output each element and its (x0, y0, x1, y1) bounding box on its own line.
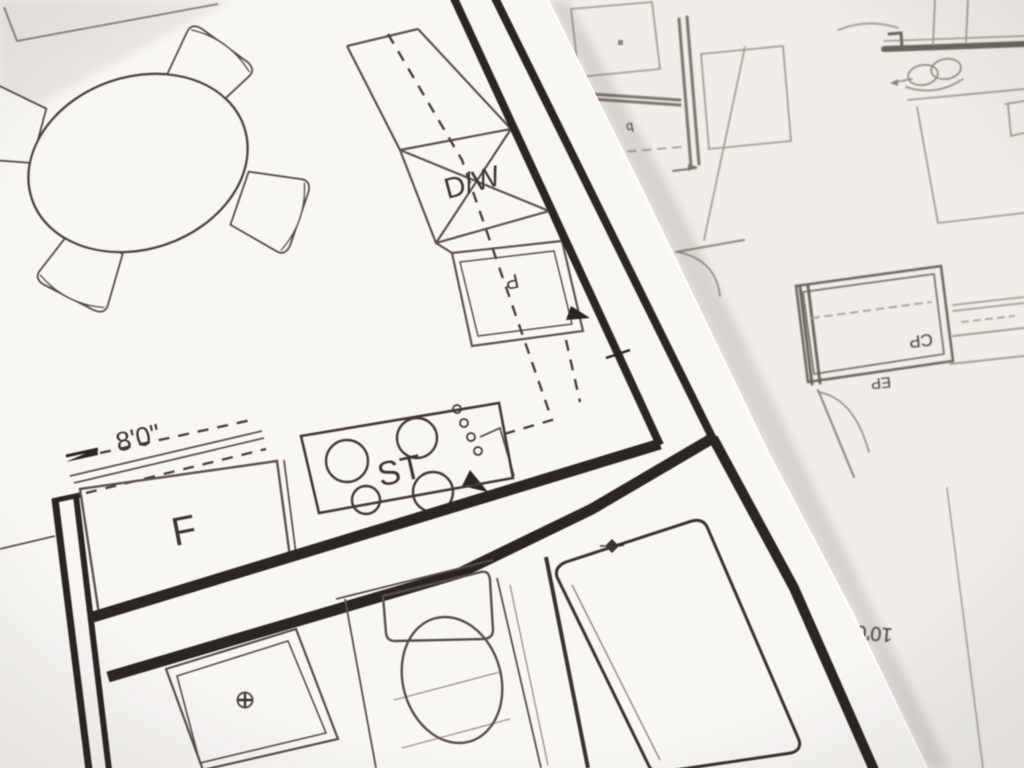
photo-vignette (0, 0, 1024, 768)
blueprint-photo: 6'0 b CP EP 10'0 (0, 0, 1024, 768)
